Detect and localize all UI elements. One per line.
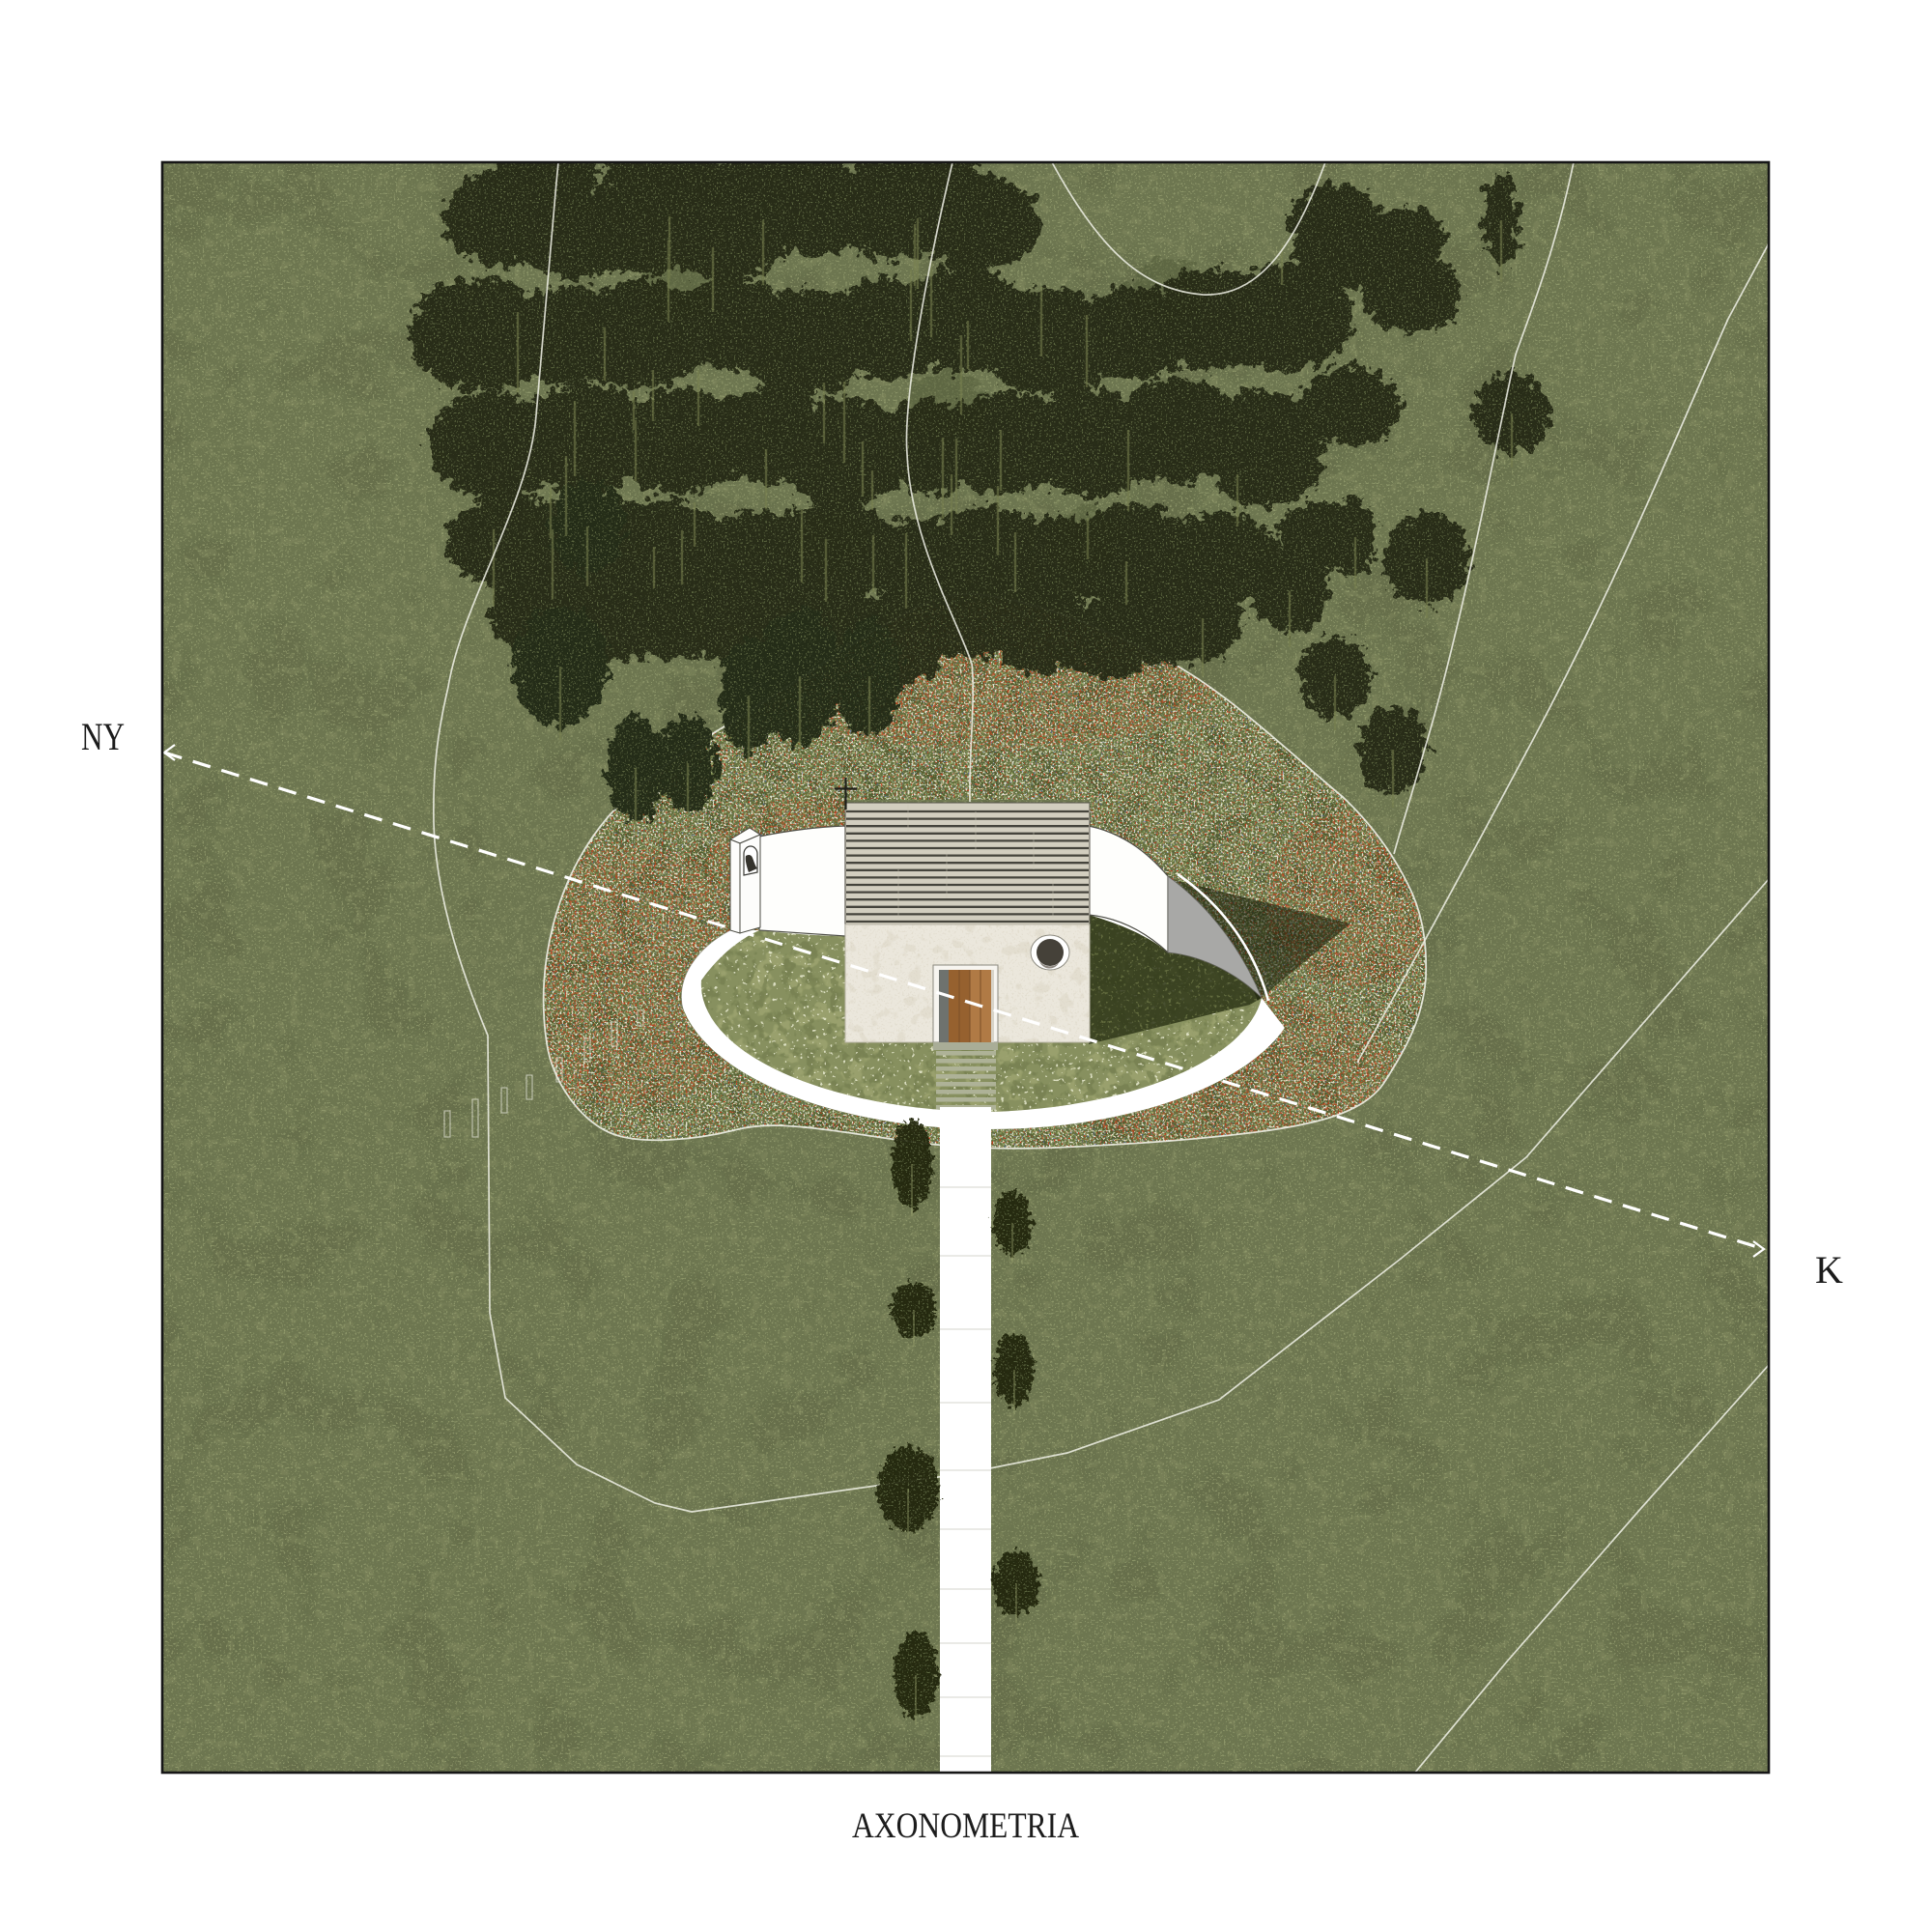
svg-text:K: K	[1815, 1248, 1843, 1292]
svg-text:NY: NY	[81, 715, 125, 758]
svg-text:AXONOMETRIA: AXONOMETRIA	[852, 1806, 1079, 1846]
